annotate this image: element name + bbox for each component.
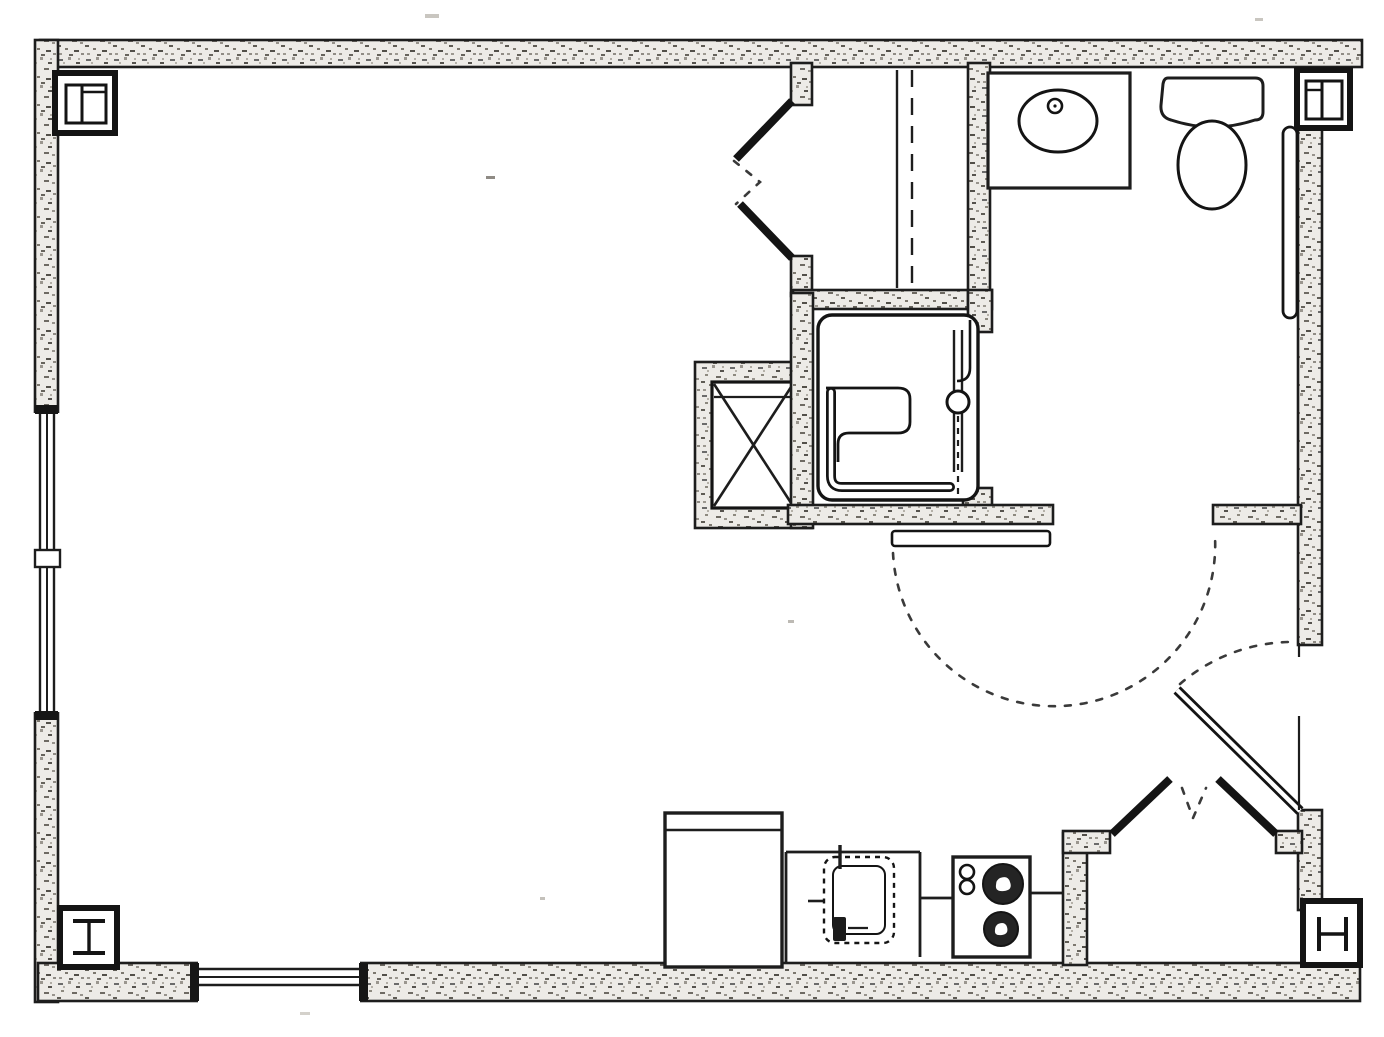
window-cap-top xyxy=(35,405,58,414)
kitchen xyxy=(665,813,1063,967)
east-wall-upper xyxy=(1298,125,1322,645)
closet xyxy=(734,63,992,310)
floor-plan-canvas xyxy=(0,0,1384,1037)
east-wall-lower xyxy=(1298,810,1322,910)
window-mullion xyxy=(35,550,60,567)
bathroom-door-stub-east xyxy=(1213,505,1301,524)
entry-door-swing-arc xyxy=(1180,642,1297,684)
cooktop xyxy=(953,857,1030,957)
entry-closet-bifold-right xyxy=(1218,779,1276,834)
cooktop-knob xyxy=(960,880,974,894)
floor-plan-page xyxy=(0,0,1384,1037)
faucet-dot xyxy=(1053,104,1056,107)
entry-closet-jamb-left xyxy=(1063,831,1110,853)
refrigerator xyxy=(665,813,782,967)
column-north-east xyxy=(1297,70,1350,128)
bathroom-south-wall xyxy=(788,505,1053,524)
south-wall-right xyxy=(360,963,1360,1001)
window-opening xyxy=(198,960,360,1004)
kitchen-sink xyxy=(824,845,894,943)
column-south-east xyxy=(1303,901,1360,965)
closet-south-wall xyxy=(793,290,992,309)
bathroom-sliding-door-panel xyxy=(892,531,1050,546)
column-north-west xyxy=(55,73,115,133)
column-south-west xyxy=(60,908,117,967)
window-cap-bottom xyxy=(35,711,58,720)
toilet-grab-bar xyxy=(1283,127,1297,318)
west-wall-lower xyxy=(35,712,58,1002)
window-cap-right xyxy=(359,963,368,1001)
entry-door-leaf-core xyxy=(1177,690,1300,811)
entry-vestibule xyxy=(1063,642,1302,965)
cooktop-knob xyxy=(960,865,974,879)
closet-bifold-leaf-upper xyxy=(736,101,792,159)
west-window xyxy=(30,405,64,720)
shower-west-wall xyxy=(791,293,813,528)
toilet xyxy=(1161,78,1263,209)
south-window xyxy=(190,960,368,1004)
shower-head-slider xyxy=(947,391,969,413)
toilet-bowl xyxy=(1178,121,1246,209)
vanity-sink xyxy=(988,73,1130,188)
bathroom-door-swing-arc xyxy=(893,537,1215,706)
entry-closet-bifold-left xyxy=(1112,779,1170,834)
sink-drain-fitting xyxy=(833,917,846,941)
closet-bifold-fold-mark xyxy=(734,161,760,204)
north-wall xyxy=(40,40,1362,67)
shower xyxy=(791,290,992,528)
entry-door xyxy=(1177,642,1300,811)
closet-bifold-leaf-lower xyxy=(740,204,792,258)
window-cap-left xyxy=(190,963,199,1001)
entry-closet-jamb-right xyxy=(1276,831,1302,853)
entry-closet-fold-mark xyxy=(1182,788,1206,818)
closet-jamb-top xyxy=(791,63,812,105)
